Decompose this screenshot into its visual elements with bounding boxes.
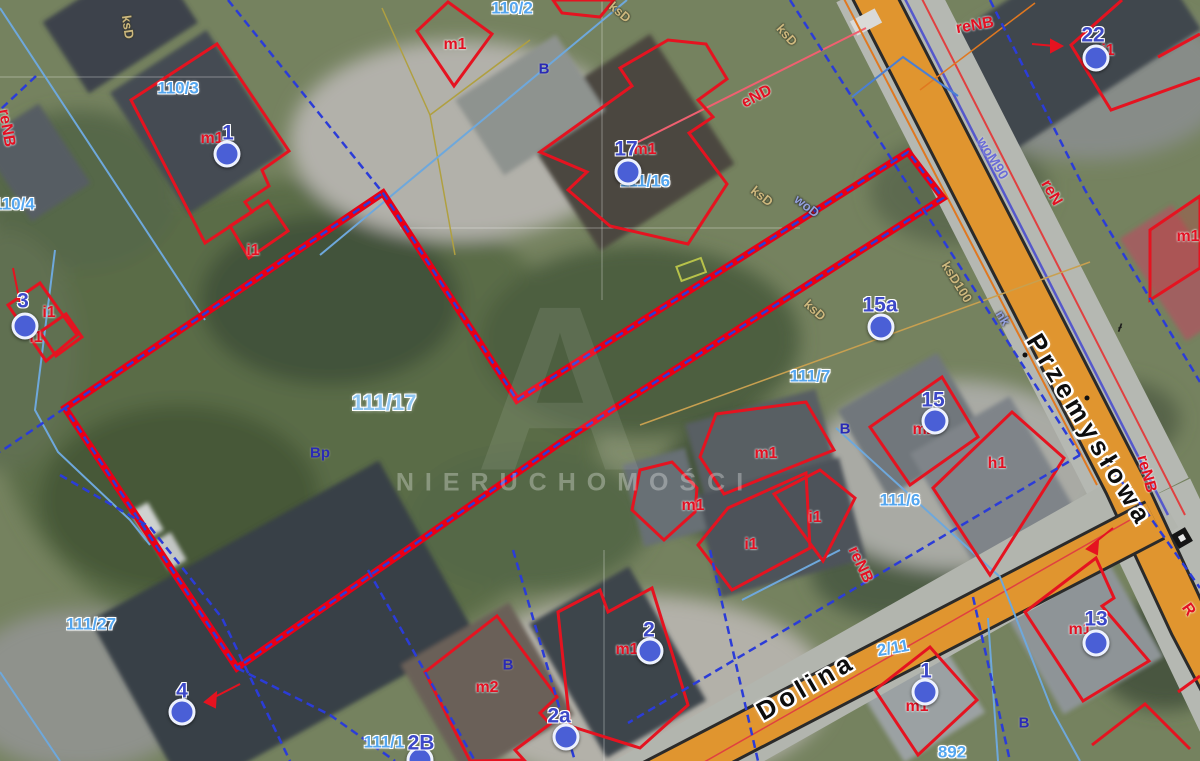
address-point-number-3: 3: [17, 291, 29, 312]
parcel-number-label-111-7: 111/7: [790, 368, 831, 385]
zoning-label-b: B: [503, 658, 514, 673]
utility-line-label-ksd: ksD: [749, 184, 776, 209]
utility-line-label-ksd: ksD: [774, 22, 800, 48]
utility-line-label-ksd: ksD: [607, 0, 634, 25]
building-class-label-m1: m1: [615, 642, 638, 658]
building-class-label-i1: i1: [808, 510, 821, 526]
building-class-label-h1: h1: [988, 456, 1007, 472]
utility-line-label--: ł: [1116, 322, 1123, 334]
building-class-label-i1: i1: [42, 305, 55, 321]
address-point-marker-13[interactable]: [1083, 630, 1110, 657]
address-point-marker-22[interactable]: [1083, 45, 1110, 72]
address-point-marker-17[interactable]: [615, 159, 642, 186]
address-point-marker-15[interactable]: [922, 408, 949, 435]
building-class-label-renb: reNB: [0, 108, 17, 148]
building-class-label-renb: reNB: [955, 15, 995, 37]
parcel-number-label-2-11: 2/11: [876, 637, 911, 659]
parcel-number-label-110-2: 110/2: [491, 0, 533, 17]
building-class-label-ren: reN: [1037, 177, 1064, 208]
utility-line-label-ksd100: ksD100: [939, 259, 974, 305]
address-point-marker-4[interactable]: [169, 699, 196, 726]
map-labels-layer: 110/3110/2110/4111/16111/17111/7111/6111…: [0, 0, 1200, 761]
street-name-label-dolina: Dolina: [752, 647, 860, 724]
building-class-label-end: eND: [739, 82, 775, 111]
address-point-marker-1[interactable]: [214, 141, 241, 168]
parcel-number-label-111-27: 111/27: [66, 616, 116, 633]
utility-line-label-wom90: woM90: [975, 134, 1012, 181]
address-point-number-13: 13: [1084, 609, 1107, 630]
parcel-number-label-111-6: 111/6: [880, 492, 921, 509]
parcel-number-label-892: 892: [938, 744, 966, 761]
zoning-label-b: B: [840, 422, 851, 437]
address-point-number-17: 17: [614, 139, 637, 160]
zoning-label-b: B: [1019, 716, 1030, 731]
zoning-label-b: B: [539, 62, 550, 77]
address-point-marker-1[interactable]: [912, 679, 939, 706]
building-class-label-m1: m1: [754, 446, 777, 462]
building-class-label-m1: m1: [681, 498, 704, 514]
building-class-label-i1: i1: [246, 243, 259, 259]
building-class-label-r: R: [1178, 601, 1198, 620]
address-point-number-15a: 15a: [862, 295, 897, 316]
building-class-label-m1: m1: [443, 37, 466, 53]
building-class-label-i1: i1: [744, 537, 757, 553]
parcel-number-label-111-1: 111/1: [364, 734, 405, 751]
parcel-number-label-111-17: 111/17: [352, 392, 417, 414]
parcel-number-label-110-4: 110/4: [0, 196, 35, 213]
address-point-number-22: 22: [1081, 25, 1104, 46]
building-class-label-m1: m1: [633, 142, 656, 158]
building-class-label-renb: reNB: [845, 544, 876, 585]
building-class-label-renb: reNB: [1133, 453, 1158, 494]
address-point-marker-2[interactable]: [637, 638, 664, 665]
utility-line-label-nk: nk: [993, 308, 1012, 328]
parcel-number-label-110-3: 110/3: [157, 80, 199, 97]
map-canvas[interactable]: A NIERUCHOMOŚCI 110/3110/2110/4111/16111…: [0, 0, 1200, 761]
building-class-label-m1: m1: [1176, 229, 1199, 245]
address-point-marker-2b[interactable]: [407, 747, 434, 761]
zoning-label-bp: Bp: [310, 446, 330, 461]
address-point-marker-3[interactable]: [12, 313, 39, 340]
utility-line-label-wod: woD: [792, 192, 822, 219]
building-class-label-m2: m2: [475, 680, 498, 696]
address-point-marker-15a[interactable]: [868, 314, 895, 341]
utility-line-label-ksd: ksD: [120, 14, 136, 39]
address-point-marker-2a[interactable]: [553, 724, 580, 751]
street-name-label-przemys-owa: Przemysłowa: [1022, 329, 1157, 531]
utility-line-label-ksd: ksD: [802, 297, 828, 323]
